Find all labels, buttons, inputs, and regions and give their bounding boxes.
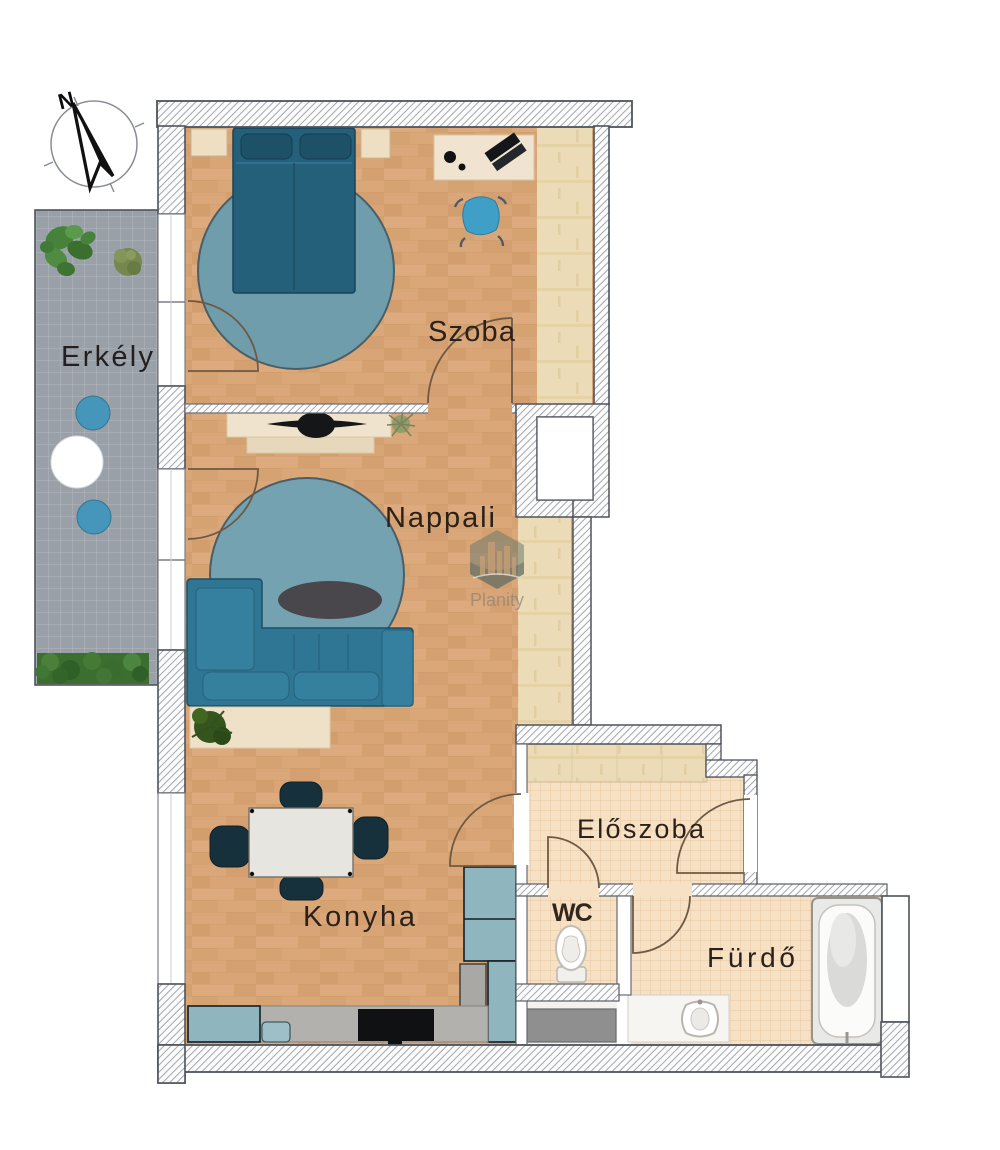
svg-text:Erkély: Erkély bbox=[61, 341, 154, 373]
svg-text:Konyha: Konyha bbox=[303, 901, 416, 933]
svg-text:WC: WC bbox=[552, 899, 593, 927]
svg-text:Planity: Planity bbox=[470, 590, 524, 610]
svg-text:N: N bbox=[55, 86, 76, 114]
svg-text:Szoba: Szoba bbox=[428, 316, 516, 348]
svg-text:Fürdő: Fürdő bbox=[707, 942, 795, 973]
